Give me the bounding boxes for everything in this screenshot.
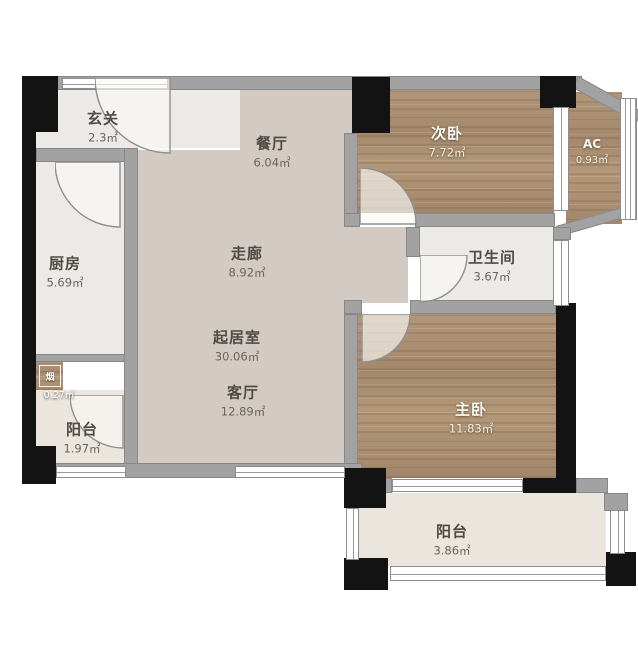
flue-area-label: 0.27㎡ <box>29 387 89 401</box>
wall-kitchen-bottom <box>35 354 125 362</box>
kitchen-label: 厨房 5.69㎡ <box>46 254 83 289</box>
kitchen-door <box>55 162 121 228</box>
pillar-master-bottom-right <box>523 478 576 493</box>
window-living-room-bottom <box>235 466 345 478</box>
pillar-bottom-left <box>22 446 56 484</box>
wall-second-bedroom-bottom-stub <box>344 213 360 227</box>
wall-master-top-left <box>344 300 362 314</box>
wall-bathroom-left <box>406 227 420 257</box>
south-balcony-floor <box>358 493 606 566</box>
pillar-master-right <box>556 303 576 493</box>
window-south-balcony-left <box>346 508 359 560</box>
window-bathroom-right <box>553 240 569 306</box>
master-bedroom-label: 主卧 11.83㎡ <box>449 400 493 435</box>
living-room-label: 客厅 12.89㎡ <box>221 383 265 418</box>
wall-south-balcony-top-right <box>576 478 608 493</box>
window-master-balcony <box>392 479 523 492</box>
pillar-balcony-northwest <box>344 468 386 508</box>
south-balcony-label: 阳台 3.86㎡ <box>433 522 470 557</box>
bathroom-label: 卫生间 3.67㎡ <box>468 248 516 283</box>
window-west-balcony-bottom <box>56 466 126 478</box>
entry-label: 玄关 2.3㎡ <box>87 109 119 144</box>
west-balcony-label: 阳台 1.97㎡ <box>63 420 100 455</box>
flue-label: 烟 <box>39 365 61 387</box>
floor-plan: 玄关 2.3㎡ 餐厅 6.04㎡ 次卧 7.72㎡ AC 0.93㎡ 厨房 5.… <box>0 0 638 652</box>
wall-master-left <box>344 314 358 470</box>
window-ac-louver <box>620 98 637 220</box>
pillar-top-middle <box>352 77 390 133</box>
second-bedroom-door <box>360 168 417 225</box>
wall-bathroom-top <box>415 213 555 227</box>
hallway-floor <box>352 227 408 303</box>
bathroom-door <box>420 255 468 303</box>
wall-bathroom-right-upper <box>553 227 571 240</box>
pillar-balcony-southwest <box>344 558 388 590</box>
pillar-top-right <box>540 76 576 108</box>
window-south-balcony-bottom <box>390 566 606 581</box>
second-bedroom-label: 次卧 7.72㎡ <box>428 124 465 159</box>
ac-label: AC 0.93㎡ <box>576 137 608 167</box>
pillar-left-wall <box>22 76 36 468</box>
pillar-top-left <box>22 76 58 132</box>
wall-south-balcony-right <box>604 493 628 511</box>
window-south-balcony-right <box>610 510 625 554</box>
dining-label: 餐厅 6.04㎡ <box>253 134 290 169</box>
living-suite-label: 起居室 30.06㎡ <box>213 328 261 363</box>
pillar-balcony-southeast <box>606 552 636 586</box>
corridor-label: 走廊 8.92㎡ <box>228 244 265 279</box>
window-second-bedroom-ac <box>553 107 569 211</box>
wall-kitchen-right <box>124 148 138 466</box>
master-bedroom-door <box>362 314 411 363</box>
